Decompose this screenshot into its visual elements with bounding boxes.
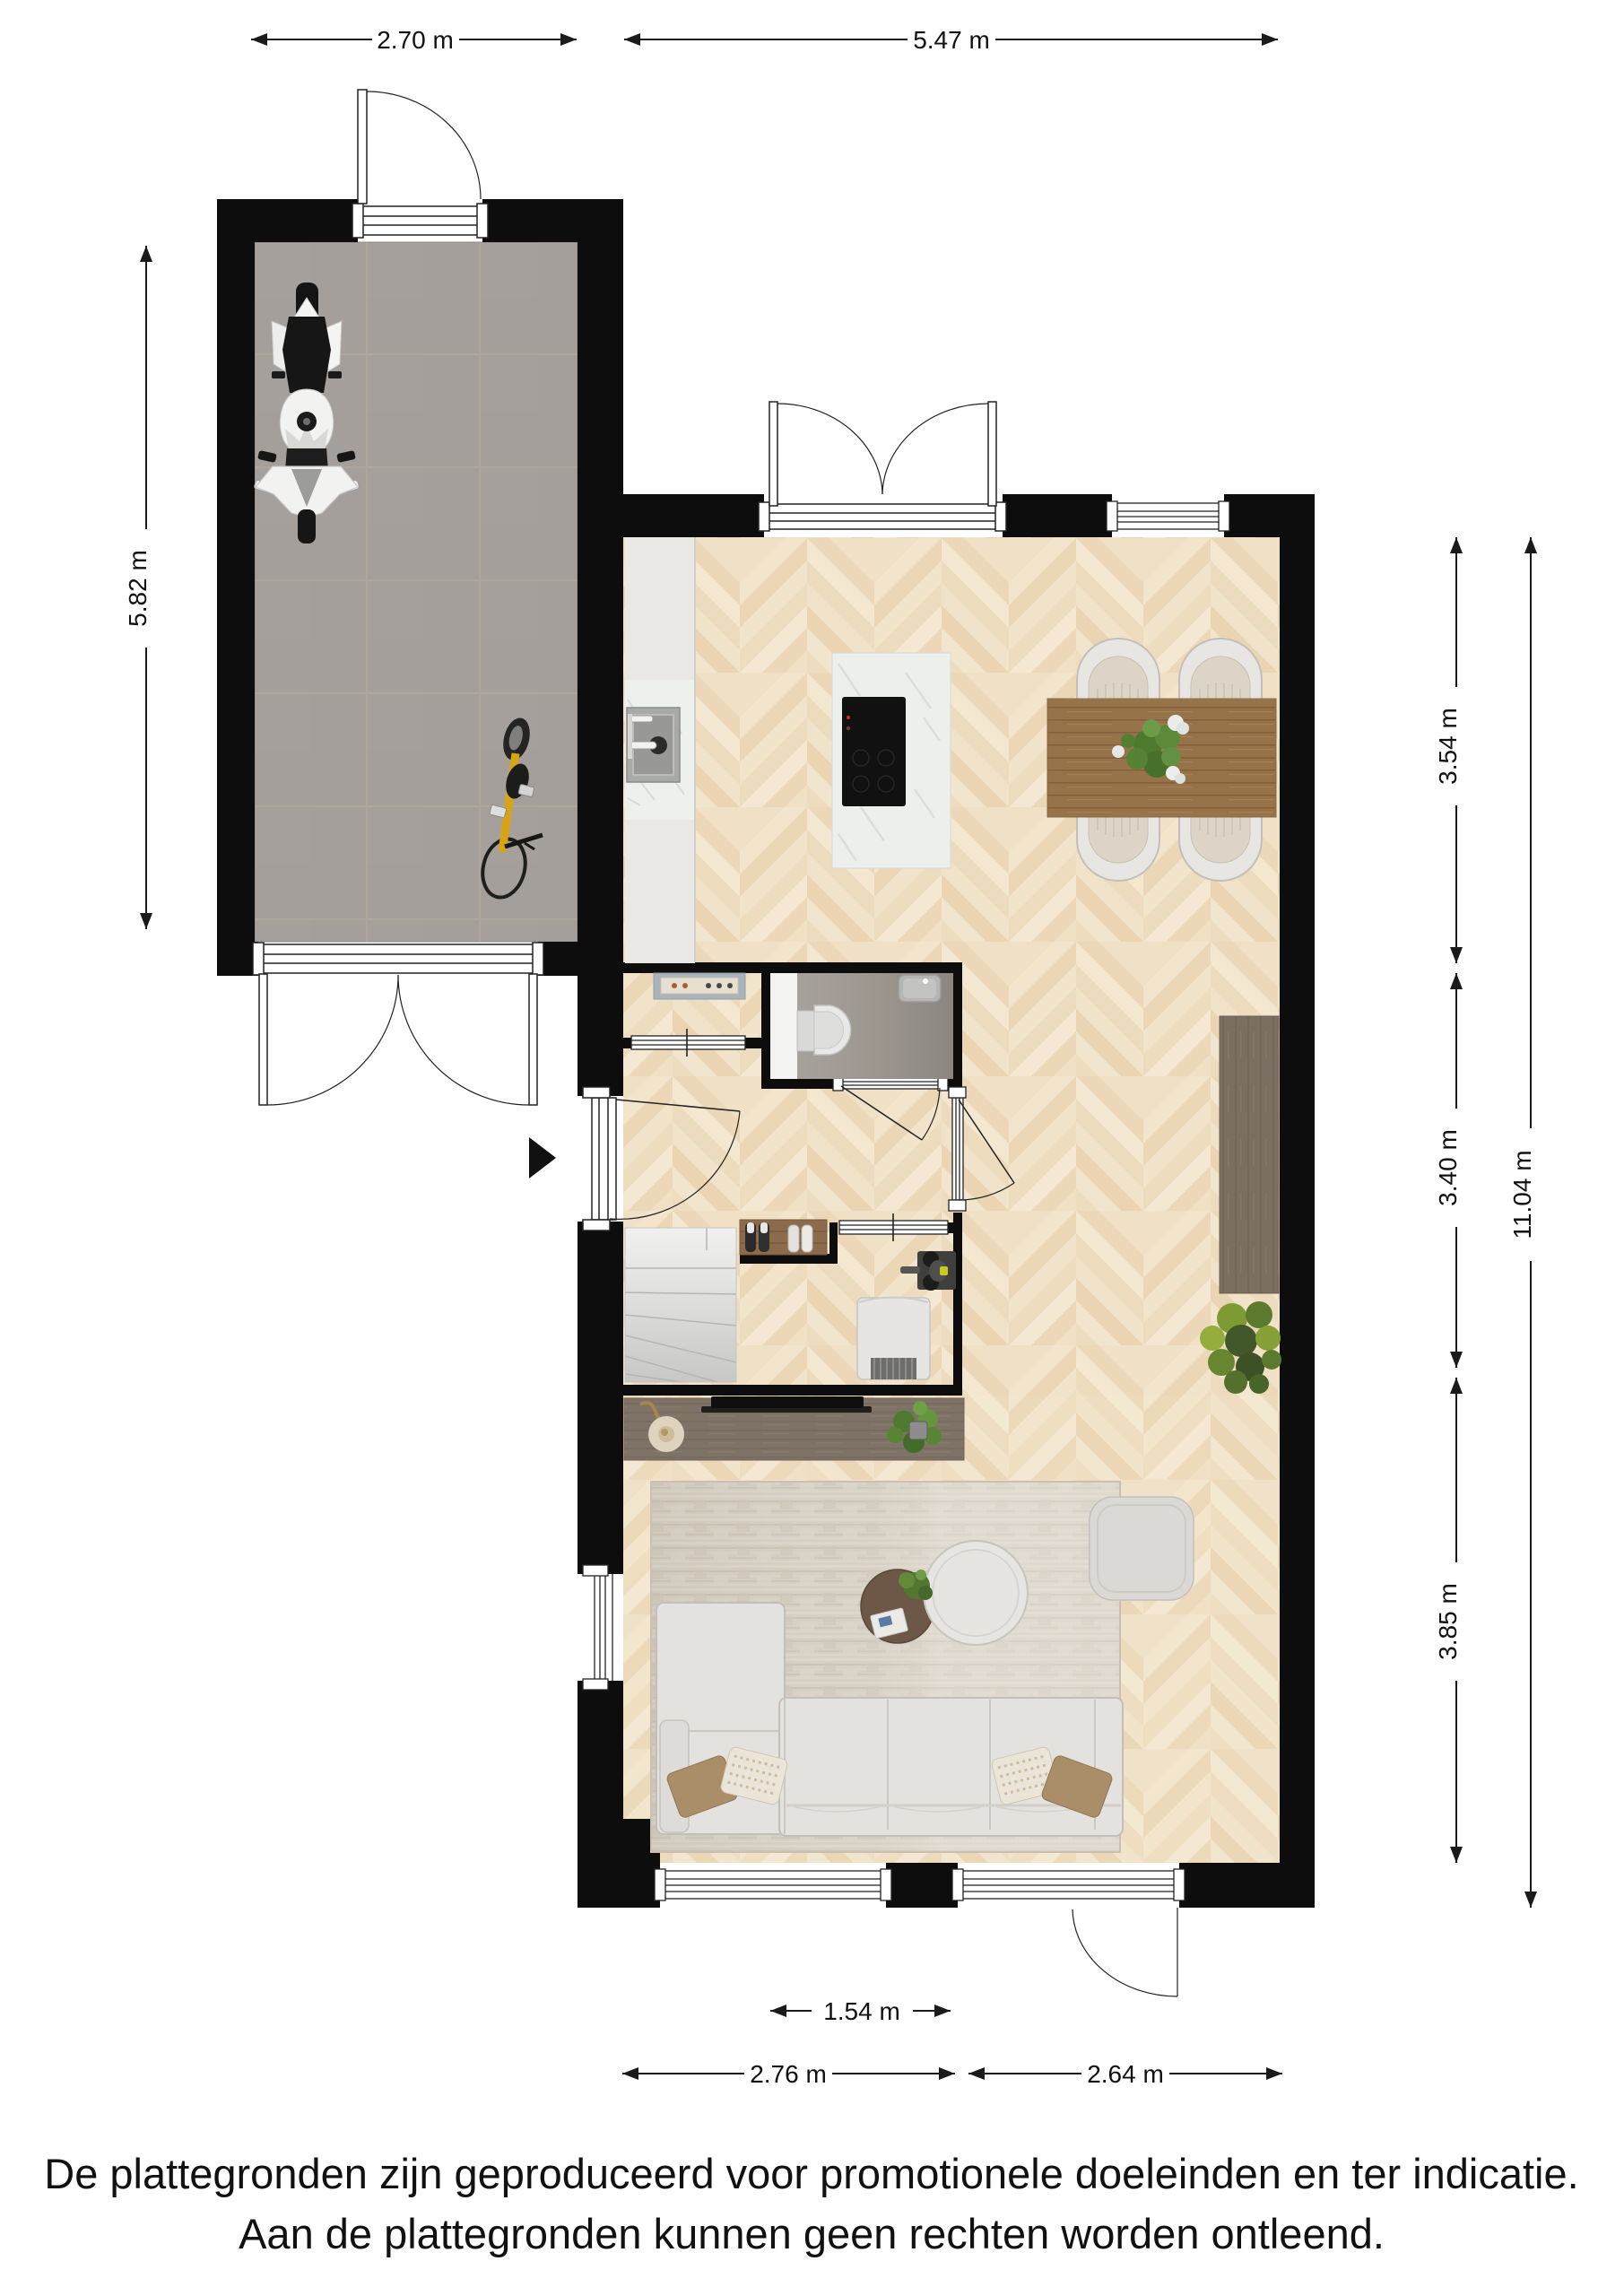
svg-text:3.54 m: 3.54 m: [1434, 708, 1462, 785]
svg-text:Aan de plattegronden kunnen ge: Aan de plattegronden kunnen geen rechten…: [239, 2210, 1385, 2257]
svg-text:2.64 m: 2.64 m: [1087, 2060, 1164, 2088]
svg-text:5.82 m: 5.82 m: [124, 550, 152, 627]
svg-text:1.54 m: 1.54 m: [823, 1997, 900, 2025]
svg-text:3.85 m: 3.85 m: [1434, 1583, 1462, 1660]
svg-text:5.47 m: 5.47 m: [913, 26, 990, 54]
svg-text:2.76 m: 2.76 m: [750, 2060, 827, 2088]
svg-text:3.40 m: 3.40 m: [1434, 1129, 1462, 1206]
svg-text:11.04 m: 11.04 m: [1508, 1150, 1536, 1239]
svg-text:2.70 m: 2.70 m: [377, 26, 454, 54]
svg-text:De plattegronden zijn geproduc: De plattegronden zijn geproduceerd voor …: [44, 2150, 1578, 2197]
